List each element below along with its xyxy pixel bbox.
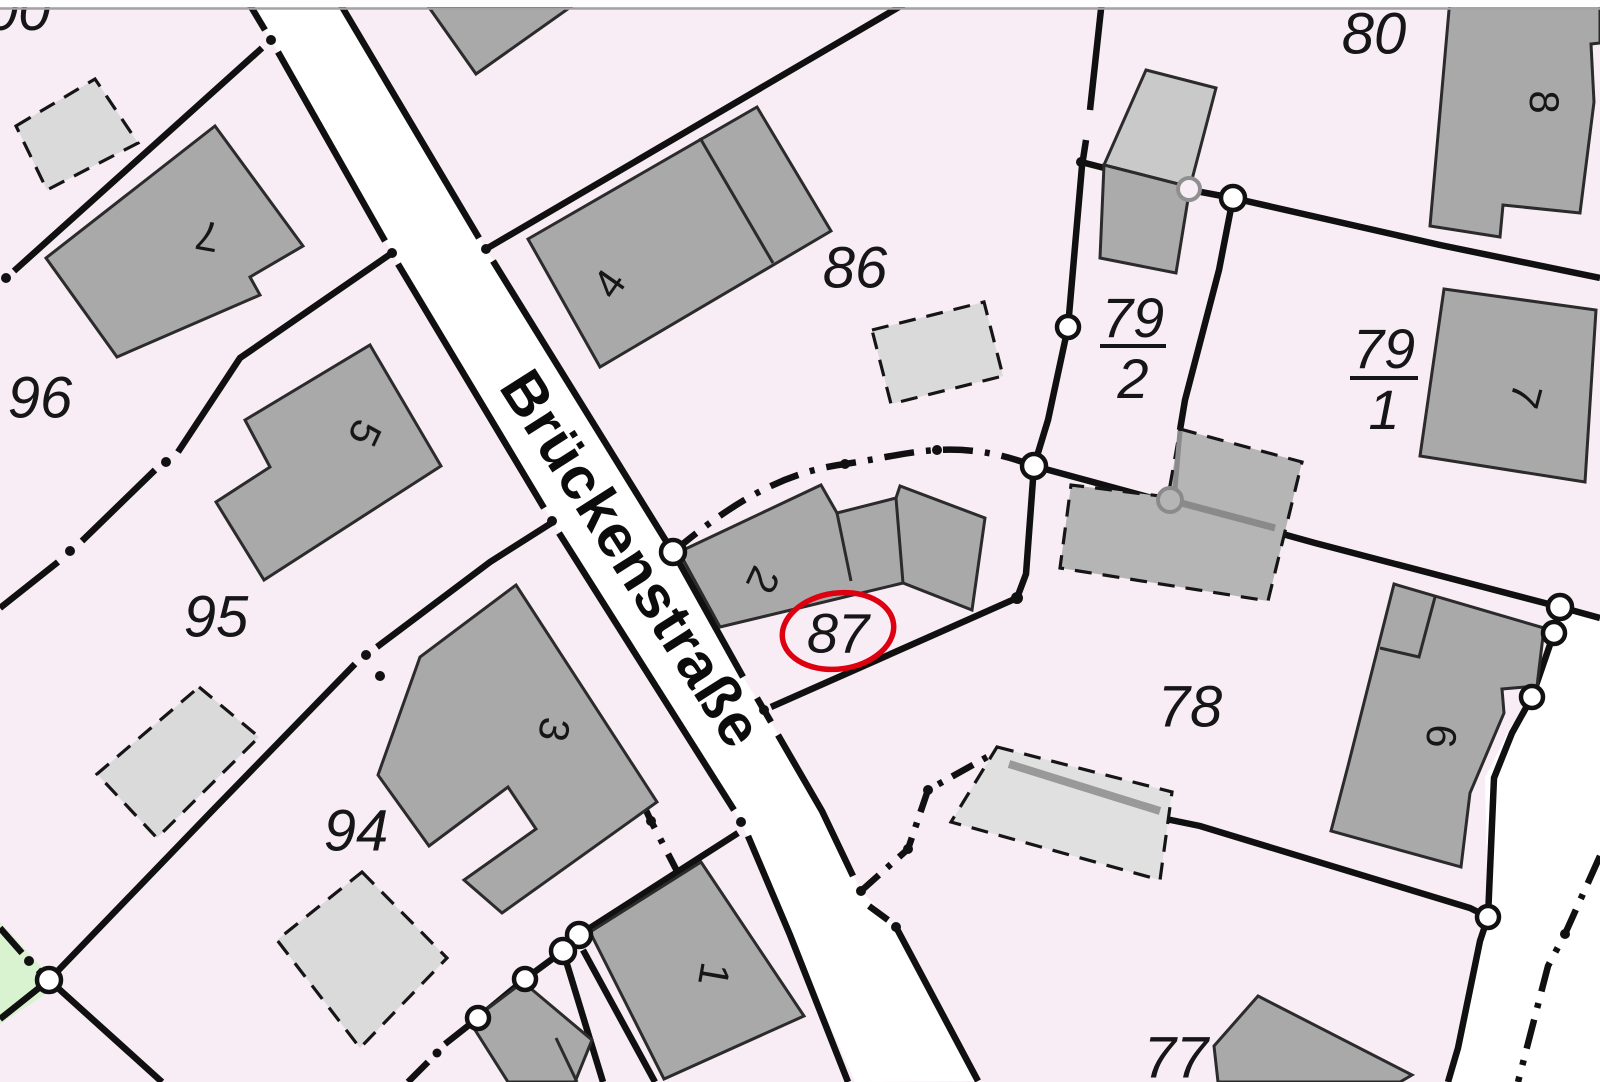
svg-text:8: 8	[1521, 90, 1568, 113]
svg-text:79: 79	[1353, 317, 1415, 380]
svg-text:94: 94	[324, 799, 389, 864]
svg-text:78: 78	[1158, 675, 1223, 740]
svg-text:6: 6	[1417, 723, 1466, 750]
svg-text:96: 96	[8, 366, 73, 431]
svg-text:77: 77	[1144, 1026, 1211, 1082]
svg-text:1: 1	[1368, 378, 1399, 441]
svg-text:2: 2	[1116, 347, 1148, 410]
svg-text:80: 80	[1342, 2, 1407, 67]
svg-text:79: 79	[1102, 286, 1164, 349]
svg-text:87: 87	[807, 602, 871, 665]
svg-text:95: 95	[184, 585, 249, 650]
svg-text:86: 86	[823, 236, 888, 301]
